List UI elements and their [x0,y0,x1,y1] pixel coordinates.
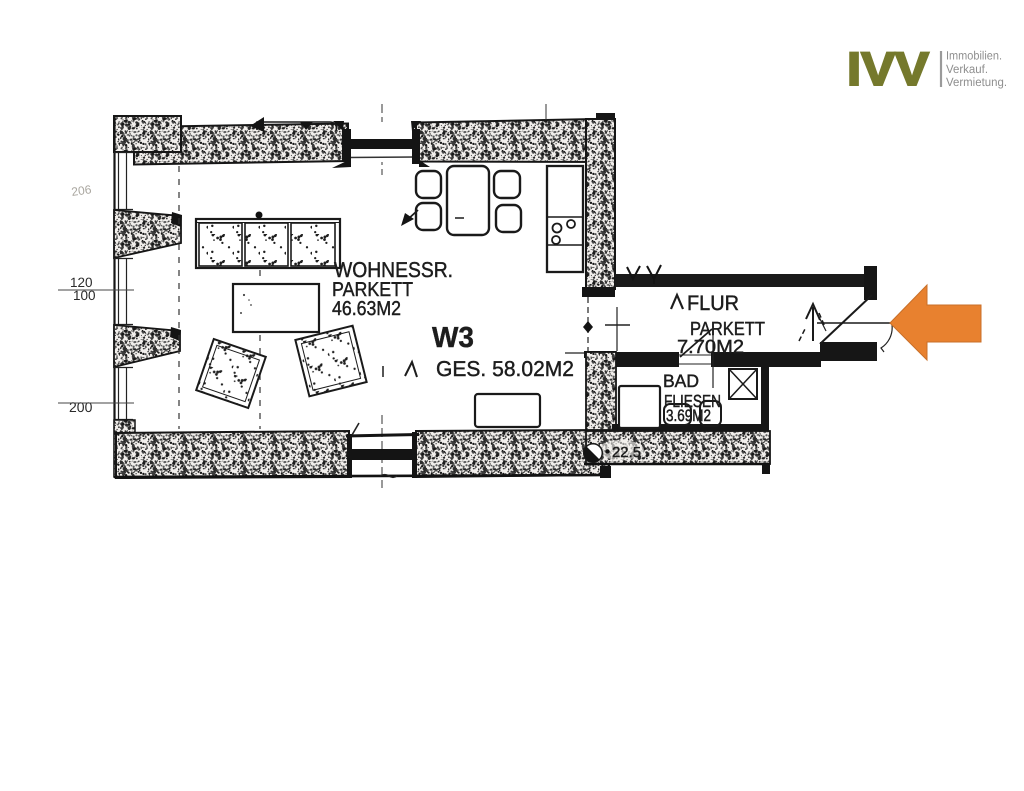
svg-text:W3: W3 [432,322,474,354]
svg-text:206: 206 [70,182,92,199]
svg-text:Immobilien.: Immobilien. [946,49,1002,63]
svg-text:22.5: 22.5 [612,445,641,461]
svg-text:FLUR: FLUR [687,292,739,315]
svg-text:IVV: IVV [847,42,930,95]
svg-text:3.69M2: 3.69M2 [666,407,711,425]
svg-text:Verkauf.: Verkauf. [946,62,988,76]
svg-text:46.63M2: 46.63M2 [332,298,401,320]
svg-text:GES. 58.02M2: GES. 58.02M2 [436,357,574,381]
svg-text:BAD: BAD [663,371,699,391]
svg-text:Vermietung.: Vermietung. [946,75,1007,89]
svg-text:200: 200 [69,399,93,415]
svg-text:7.70M2: 7.70M2 [677,337,744,358]
